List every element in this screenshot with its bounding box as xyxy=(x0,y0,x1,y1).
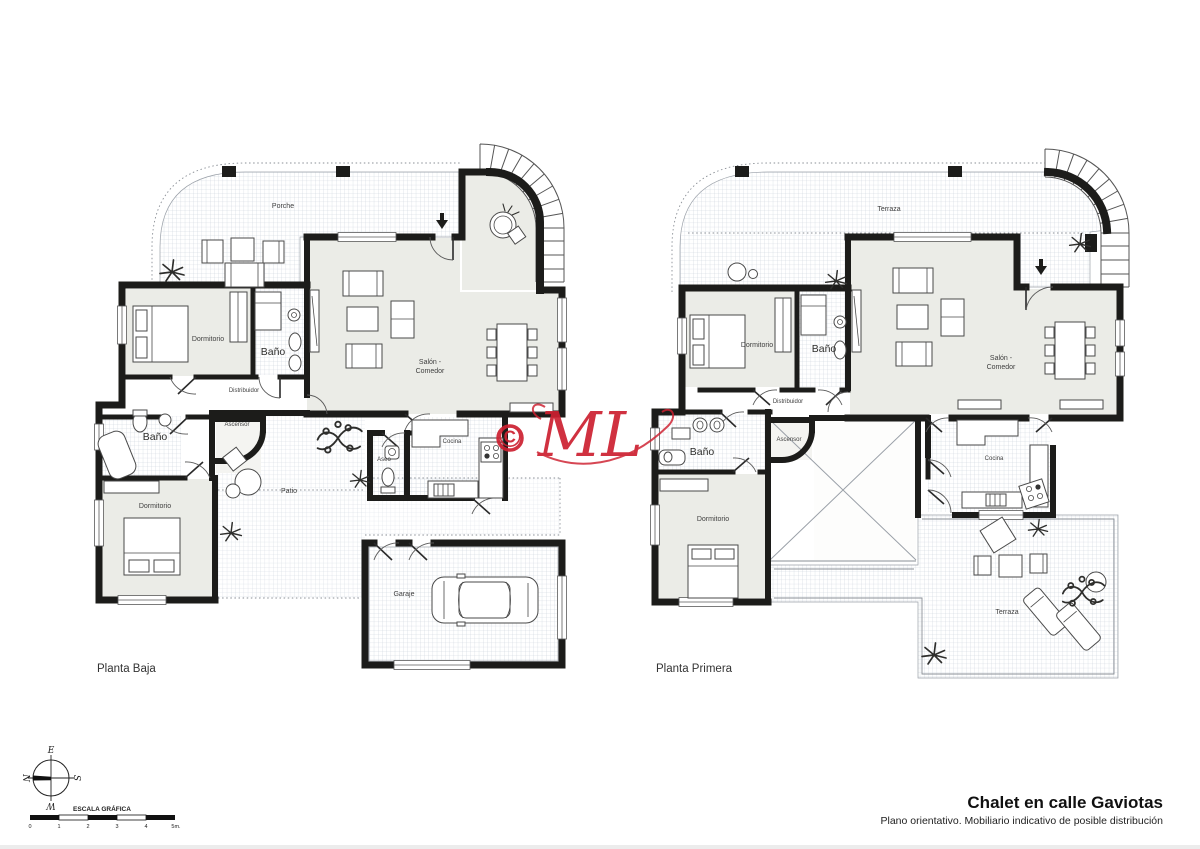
room-label-dormitorio1: Dormitorio xyxy=(192,336,224,343)
title-block: Chalet en calle Gaviotas Plano orientati… xyxy=(881,793,1164,827)
room-label-ascensor: Ascensor xyxy=(224,422,249,428)
car xyxy=(432,574,538,626)
room-label-patio: Patio xyxy=(281,488,297,495)
compass-w: W xyxy=(46,800,56,810)
compass: E S W N xyxy=(20,746,81,810)
room-label-cocina-p1: Cocina xyxy=(985,456,1004,462)
compass-e: E xyxy=(47,746,55,756)
room-label-distribuidor-p1: Distribuidor xyxy=(773,399,803,405)
room-label-salon-2: Comedor xyxy=(416,368,445,375)
scale-tick-3: 3 xyxy=(115,824,118,830)
room-label-salon-1: Salón - xyxy=(419,359,442,366)
watermark-initials: ML xyxy=(537,398,643,471)
sheet-subtitle: Plano orientativo. Mobiliario indicativo… xyxy=(881,815,1164,827)
sheet-bottom-edge xyxy=(0,845,1200,849)
room-label-terraza2-p1: Terraza xyxy=(995,609,1018,616)
plan-title-primera: Planta Primera xyxy=(656,663,733,675)
room-label-bano1: Baño xyxy=(261,346,286,358)
room-label-bano2-p1: Baño xyxy=(690,446,715,458)
room-label-salon-1-p1: Salón - xyxy=(990,355,1013,362)
room-label-porche: Porche xyxy=(272,203,294,210)
room-label-bano1-p1: Baño xyxy=(812,343,837,355)
compass-s: S xyxy=(71,775,81,781)
planta-primera-plan: Terraza Dormitorio Baño Salón - Comedor … xyxy=(651,149,1130,678)
planta-baja-plan: Porche Dormitorio Baño Salón - Comedor D… xyxy=(95,144,567,675)
room-label-garaje: Garaje xyxy=(393,591,414,598)
scale-tick-4: 4 xyxy=(144,824,147,830)
room-label-cocina: Cocina xyxy=(443,439,462,445)
sheet-title: Chalet en calle Gaviotas xyxy=(967,793,1163,812)
scale-tick-0: 0 xyxy=(28,824,31,830)
compass-n: N xyxy=(20,773,30,783)
room-label-distribuidor: Distribuidor xyxy=(229,388,259,394)
scale-tick-2: 2 xyxy=(86,824,89,830)
room-label-terraza: Terraza xyxy=(877,206,900,213)
room-label-aseo: Aseo xyxy=(377,457,391,463)
scale-bar-label: ESCALA GRÁFICA xyxy=(73,804,131,813)
dining-furniture xyxy=(487,324,537,381)
watermark-copyright: © xyxy=(499,421,521,454)
room-label-ascensor-p1: Ascensor xyxy=(776,437,801,443)
dining-furniture-p1 xyxy=(1045,322,1095,379)
scale-tick-1: 1 xyxy=(57,824,60,830)
room-label-dormitorio2-p1: Dormitorio xyxy=(697,516,729,523)
room-label-salon-2-p1: Comedor xyxy=(987,364,1016,371)
room-label-dormitorio2: Dormitorio xyxy=(139,503,171,510)
room-label-bano2: Baño xyxy=(143,431,168,443)
floor-plan-sheet: Porche Dormitorio Baño Salón - Comedor D… xyxy=(0,0,1200,849)
scale-tick-5: 5m. xyxy=(171,824,181,830)
room-label-dormitorio1-p1: Dormitorio xyxy=(741,342,773,349)
plan-title-baja: Planta Baja xyxy=(97,663,156,675)
